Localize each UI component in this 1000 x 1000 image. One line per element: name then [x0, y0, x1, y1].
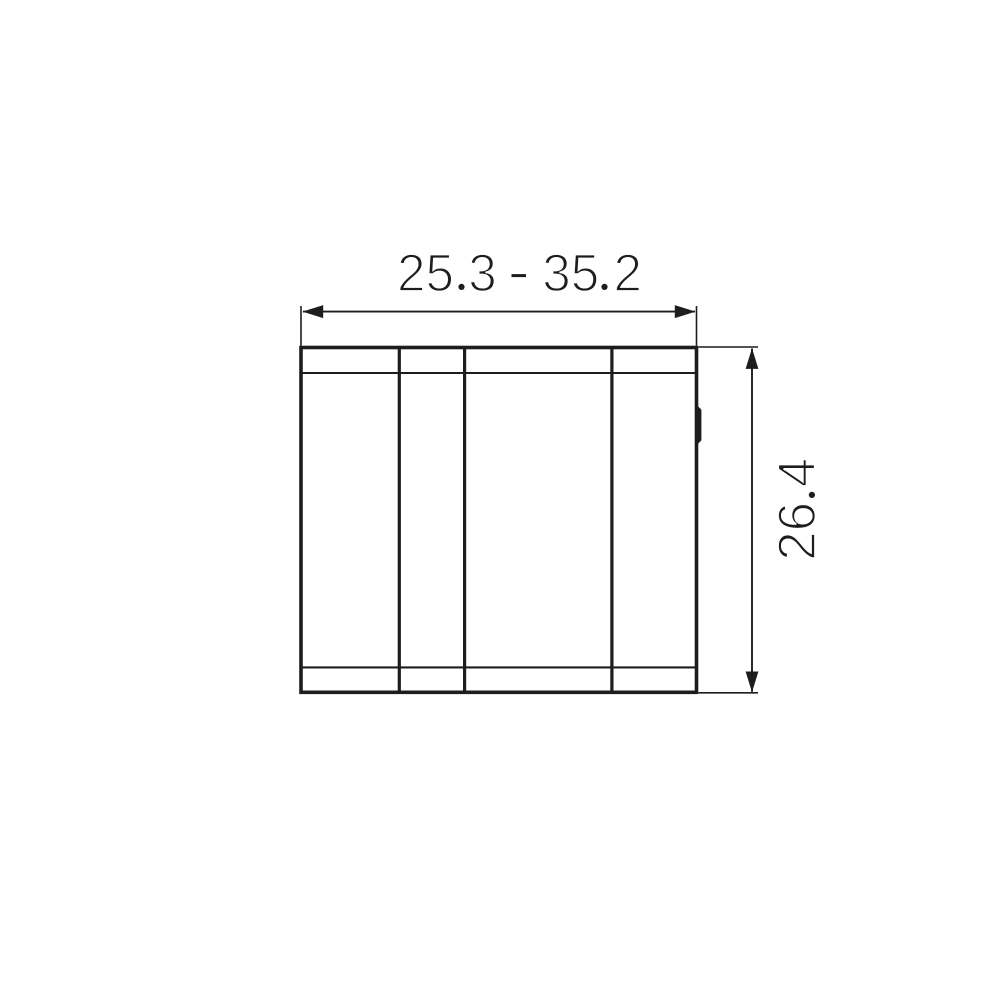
svg-text:26.4: 26.4	[768, 458, 827, 561]
svg-text:25.3 - 35.2: 25.3 - 35.2	[397, 244, 642, 303]
